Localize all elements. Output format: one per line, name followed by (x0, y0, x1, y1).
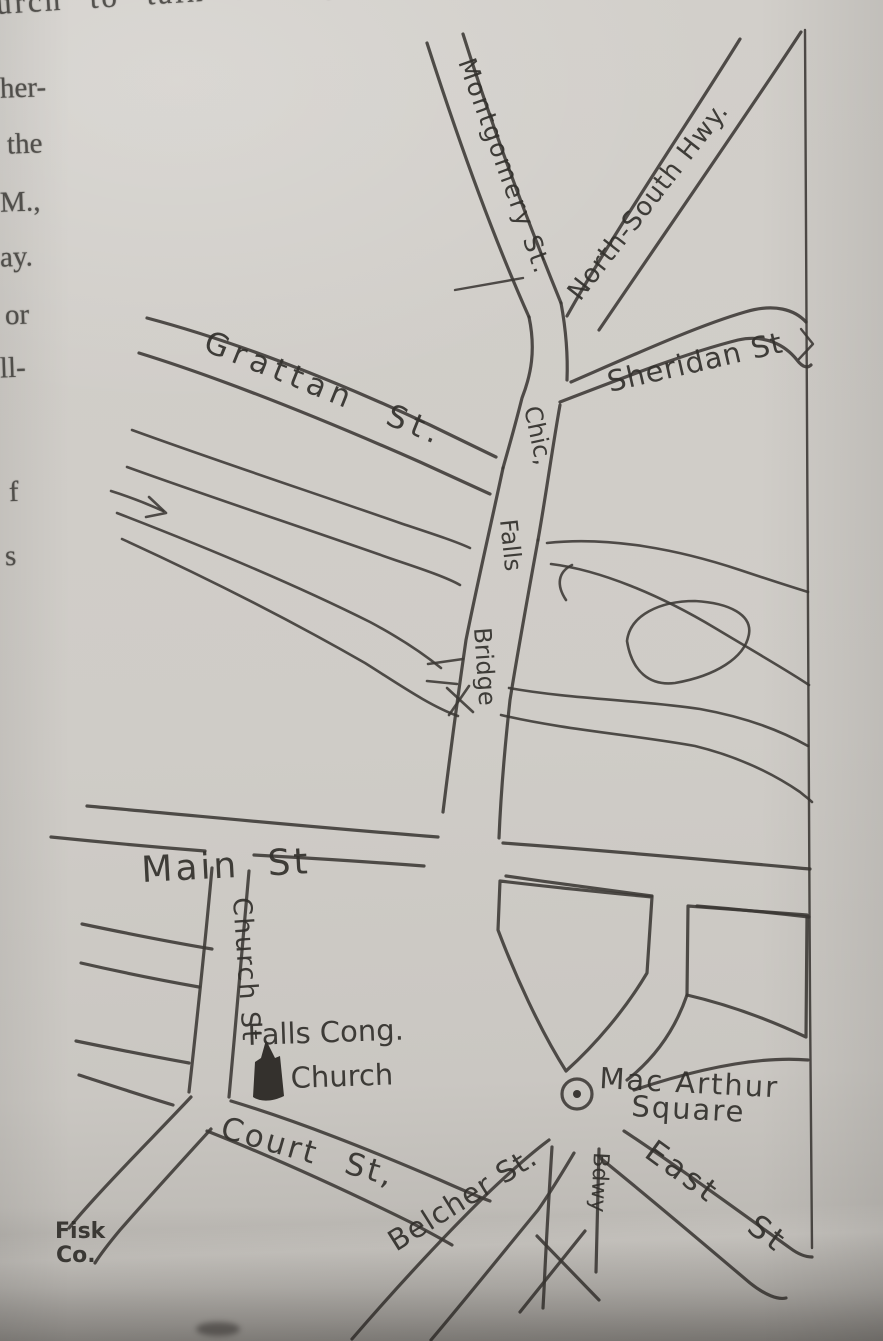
hand-drawn-map: Montgomery St. North-South Hwy. Sheridan… (0, 0, 883, 1341)
river (111, 430, 812, 802)
fisk-co-label-line1: Fisk (55, 1219, 107, 1244)
court-street-label: Court St, (217, 1110, 400, 1194)
fisk-co-label-line2: Co. (56, 1243, 96, 1268)
east-street-label: East St (638, 1133, 794, 1260)
bridge-label-word2: Falls (494, 518, 527, 573)
north-south-hwy-road (567, 32, 801, 330)
grattan-street-label: Grattan St. (199, 324, 450, 453)
book-page-photo: urch to talk over your church her- the M… (0, 0, 883, 1341)
broadway-label: Bdwy (585, 1152, 613, 1213)
downtown-blocks (498, 881, 808, 1090)
east-street-road (599, 1131, 812, 1298)
macarthur-square-label-line2: Square (631, 1089, 747, 1129)
belcher-street-label: Belcher St. (382, 1139, 543, 1257)
page-bottom-artifact (196, 1322, 240, 1336)
bridge-label-word1: Chic, (518, 403, 558, 467)
map-border-line (805, 30, 812, 1248)
pentagon-block (498, 881, 652, 1071)
sheridan-street-label: Sheridan St (604, 325, 786, 398)
main-street-label: Main St (140, 841, 311, 891)
river-flow-arrow-icon (111, 491, 163, 511)
bridge-label-word3: Bridge (468, 626, 501, 706)
falls-church-label-line2: Church (290, 1057, 394, 1095)
falls-church-label-line1: Falls Cong. (247, 1013, 404, 1052)
east-block (687, 906, 807, 1037)
north-south-hwy-label: North-South Hwy. (562, 97, 735, 307)
macarthur-monument-icon (562, 1079, 592, 1109)
railroad-crossing-mark-icon (520, 1231, 585, 1312)
grattan-street-road (139, 318, 496, 494)
